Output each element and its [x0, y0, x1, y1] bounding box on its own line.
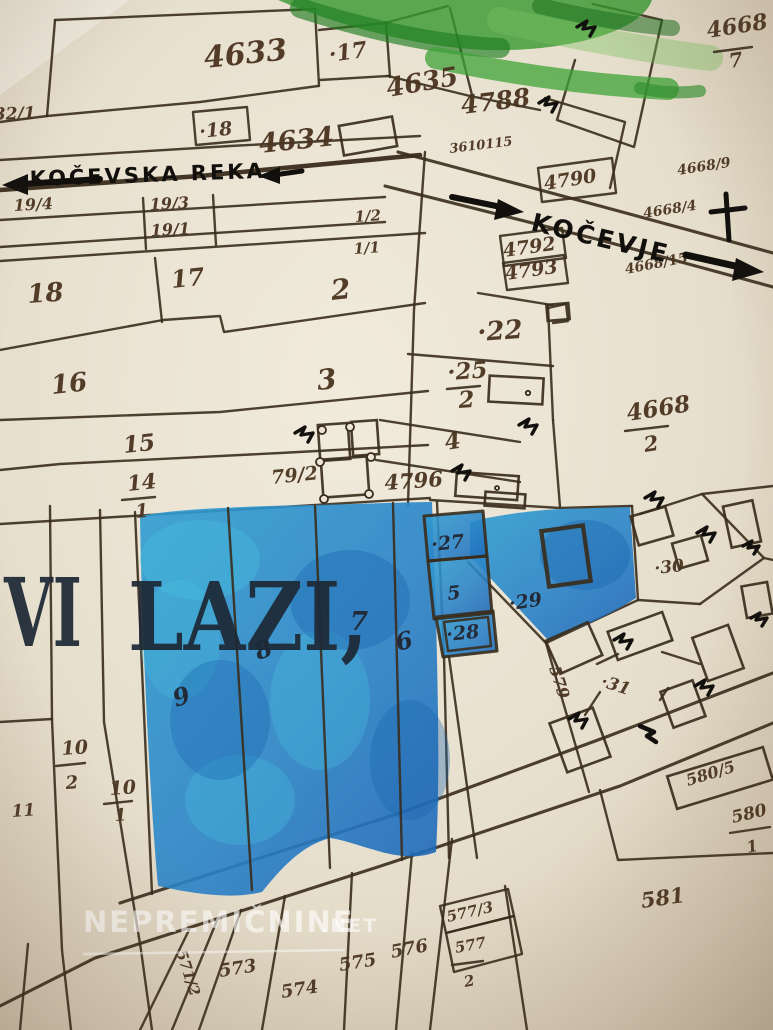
- photo-vignette: [0, 0, 773, 1030]
- cadastral-map-photo: 4633·174635·184634478836101154668732/119…: [0, 0, 773, 1030]
- map-canvas: 4633·174635·184634478836101154668732/119…: [0, 0, 773, 1030]
